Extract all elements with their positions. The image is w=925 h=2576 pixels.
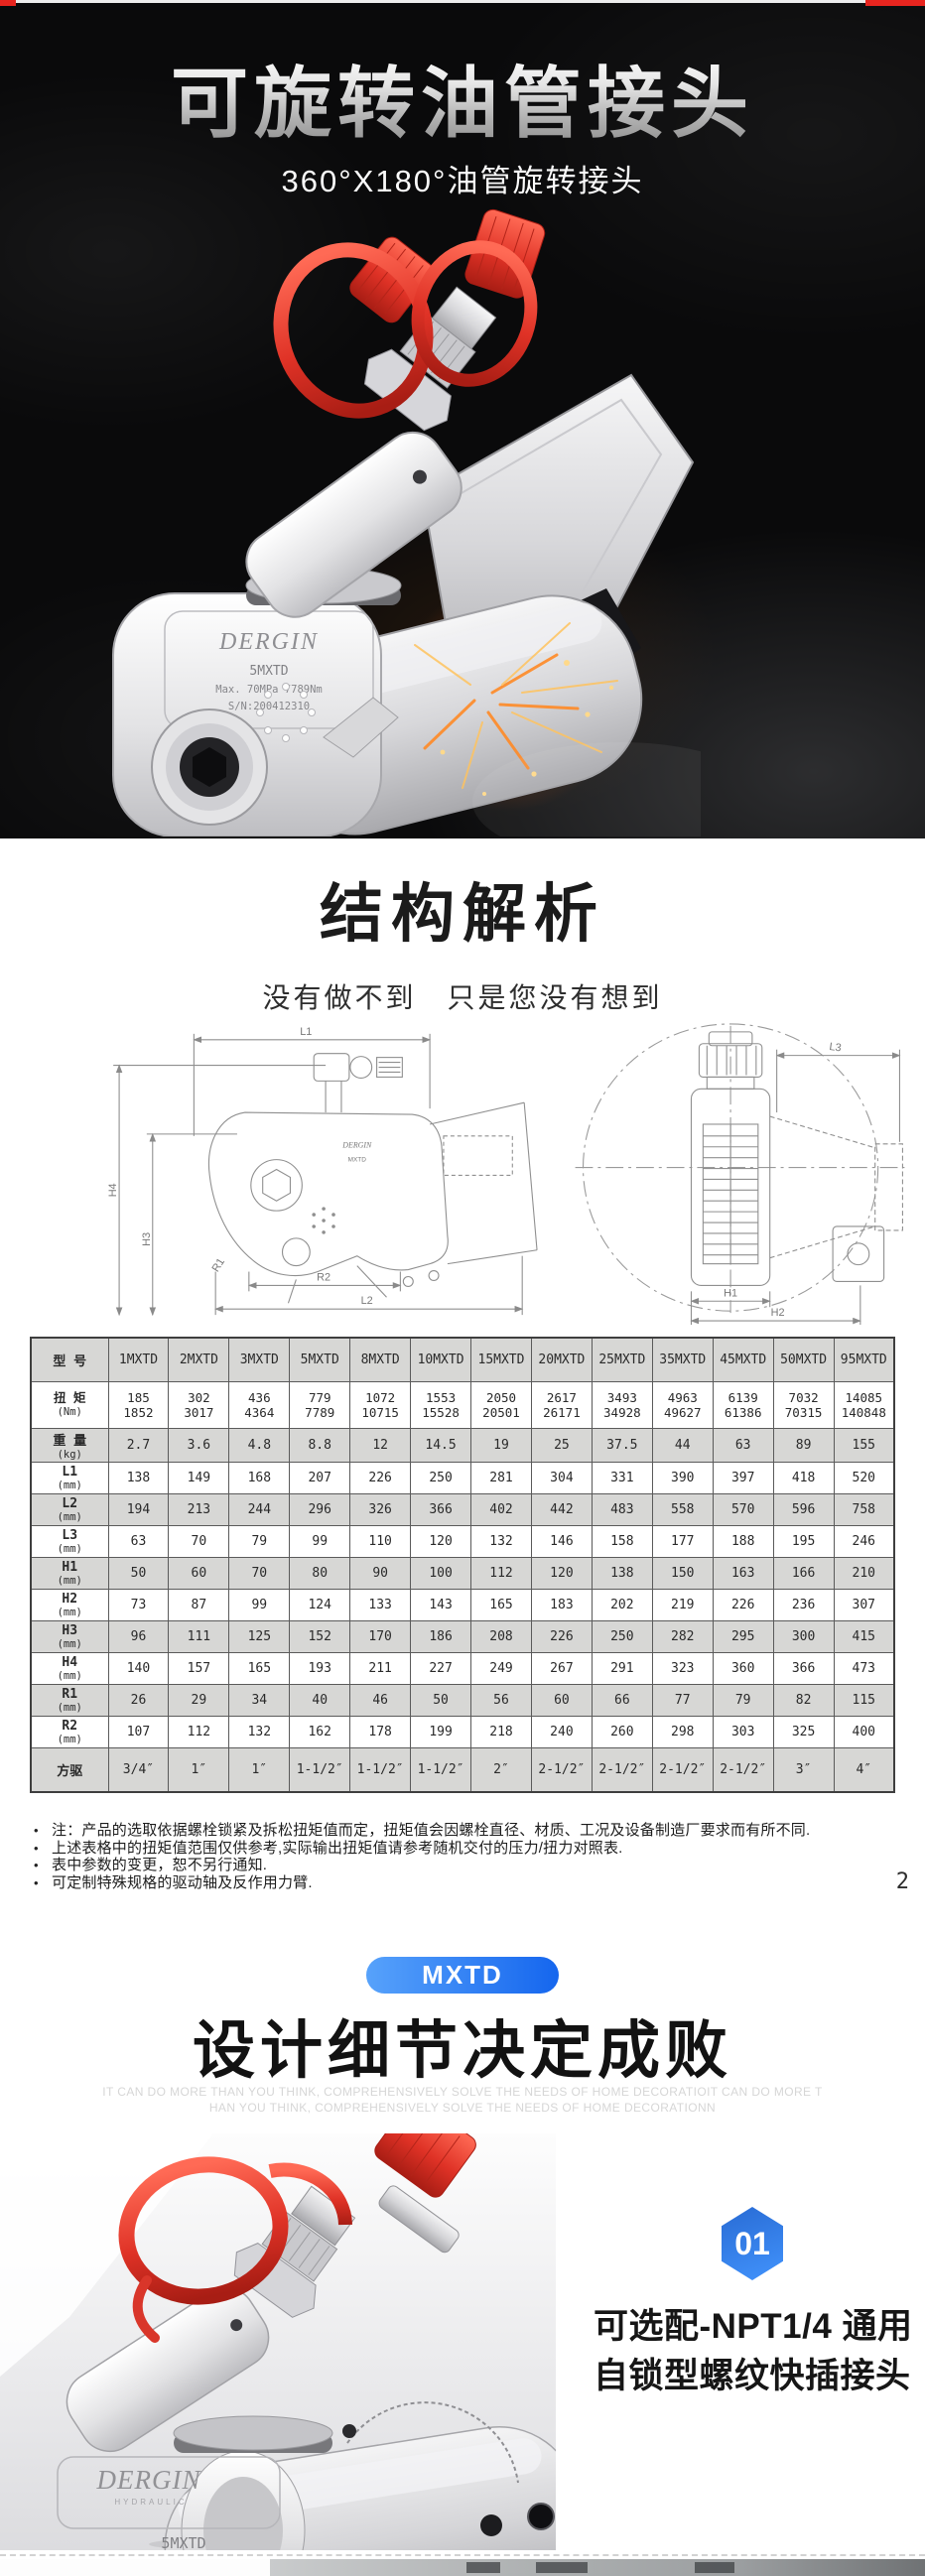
spec-value-cell: 390 xyxy=(652,1462,713,1493)
dim-label-h3: H3 xyxy=(141,1232,153,1246)
spec-value-cell: 307 xyxy=(834,1589,894,1620)
spec-value-cell: 226 xyxy=(713,1589,773,1620)
spec-value-cell: 12 xyxy=(350,1428,411,1462)
spec-value-cell: 397 xyxy=(713,1462,773,1493)
design-caption-line1: IT CAN DO MORE THAN YOU THINK, COMPREHEN… xyxy=(0,2084,925,2100)
spec-model-cell: 2MXTD xyxy=(169,1338,229,1381)
spec-value-cell: 138 xyxy=(592,1557,652,1589)
spec-value-cell: 1851852 xyxy=(108,1381,169,1428)
spec-row-label: H4(mm) xyxy=(31,1652,108,1684)
spec-value-cell: 227 xyxy=(411,1652,471,1684)
note-item: 上述表格中的扭矩值范围仅供参考,实际输出扭矩值请参考随机交付的压力/扭力对照表. xyxy=(30,1840,903,1858)
structure-subheading: 没有做不到 只是您没有想到 xyxy=(0,976,925,1016)
spec-row: 方驱3/4″1″1″1-1/2″1-1/2″1-1/2″2″2-1/2″2-1/… xyxy=(31,1747,894,1792)
spec-value-cell: 246 xyxy=(834,1525,894,1557)
dim-label-h2: H2 xyxy=(771,1307,785,1319)
spec-value-cell: 170 xyxy=(350,1620,411,1652)
structure-heading: 结构解析 xyxy=(0,863,925,955)
spec-value-cell: 303 xyxy=(713,1716,773,1747)
hero-title: 可旋转油管接头 xyxy=(0,42,925,153)
spec-value-cell: 520 xyxy=(834,1462,894,1493)
spec-value-cell: 1″ xyxy=(169,1747,229,1792)
feature-brand-mark: DERGIN xyxy=(96,2465,202,2495)
spec-value-cell: 66 xyxy=(592,1684,652,1716)
spec-value-cell: 19 xyxy=(471,1428,532,1462)
spec-value-cell: 570 xyxy=(713,1493,773,1525)
spec-value-cell: 99 xyxy=(290,1525,350,1557)
spec-value-cell: 613961386 xyxy=(713,1381,773,1428)
top-left-red-mark xyxy=(0,0,16,6)
spec-value-cell: 325 xyxy=(773,1716,834,1747)
spec-header-label: 型 号 xyxy=(31,1338,108,1381)
spec-value-cell: 4364364 xyxy=(229,1381,290,1428)
spec-value-cell: 291 xyxy=(592,1652,652,1684)
spec-value-cell: 1-1/2″ xyxy=(290,1747,350,1792)
spec-row: H2(mm)7387991241331431651832022192262363… xyxy=(31,1589,894,1620)
spec-value-cell: 25 xyxy=(531,1428,592,1462)
spec-value-cell: 115 xyxy=(834,1684,894,1716)
serial-mark: S/N:200412310 xyxy=(228,701,310,712)
spec-value-cell: 1-1/2″ xyxy=(411,1747,471,1792)
spec-value-cell: 120 xyxy=(411,1525,471,1557)
spec-value-cell: 107210715 xyxy=(350,1381,411,1428)
spec-value-cell: 166 xyxy=(773,1557,834,1589)
spec-row: L3(mm)6370799911012013214615817718819524… xyxy=(31,1525,894,1557)
spec-value-cell: 2″ xyxy=(471,1747,532,1792)
spec-row: H1(mm)5060708090100112120138150163166210 xyxy=(31,1557,894,1589)
spec-value-cell: 281 xyxy=(471,1462,532,1493)
spec-value-cell: 349334928 xyxy=(592,1381,652,1428)
spec-value-cell: 296 xyxy=(290,1493,350,1525)
spec-value-cell: 89 xyxy=(773,1428,834,1462)
feature-product-photo: DERGIN HYDRAULIC 5MXTD xyxy=(0,2133,556,2550)
spec-value-cell: 14.5 xyxy=(411,1428,471,1462)
spec-value-cell: 331 xyxy=(592,1462,652,1493)
spec-value-cell: 195 xyxy=(773,1525,834,1557)
spec-value-cell: 110 xyxy=(350,1525,411,1557)
hero-subtitle: 360°X180°油管旋转接头 xyxy=(0,156,925,200)
next-section-preview xyxy=(0,2559,925,2576)
spec-value-cell: 40 xyxy=(290,1684,350,1716)
spec-value-cell: 63 xyxy=(108,1525,169,1557)
spec-value-cell: 70 xyxy=(229,1557,290,1589)
spec-value-cell: 323 xyxy=(652,1652,713,1684)
spec-value-cell: 87 xyxy=(169,1589,229,1620)
design-caption-line2: HAN YOU THINK, COMPREHENSIVELY SOLVE THE… xyxy=(0,2100,925,2116)
spec-value-cell: 2-1/2″ xyxy=(713,1747,773,1792)
spec-value-cell: 90 xyxy=(350,1557,411,1589)
spec-value-cell: 177 xyxy=(652,1525,713,1557)
spec-value-cell: 138 xyxy=(108,1462,169,1493)
spec-row-label: L2(mm) xyxy=(31,1493,108,1525)
spec-value-cell: 152 xyxy=(290,1620,350,1652)
spec-value-cell: 213 xyxy=(169,1493,229,1525)
dim-label-h1: H1 xyxy=(724,1287,737,1299)
spec-value-cell: 260 xyxy=(592,1716,652,1747)
spec-row-label: L3(mm) xyxy=(31,1525,108,1557)
spec-value-cell: 4″ xyxy=(834,1747,894,1792)
spec-value-cell: 37.5 xyxy=(592,1428,652,1462)
feature-model-mark: 5MXTD xyxy=(161,2534,205,2550)
top-right-red-mark xyxy=(865,0,925,6)
product-detail-page: 可旋转油管接头 360°X180°油管旋转接头 xyxy=(0,0,925,2576)
spec-model-cell: 15MXTD xyxy=(471,1338,532,1381)
mxtd-badge: MXTD xyxy=(366,1957,559,1994)
spec-value-cell: 79 xyxy=(713,1684,773,1716)
spec-value-cell: 400 xyxy=(834,1716,894,1747)
spec-value-cell: 366 xyxy=(773,1652,834,1684)
svg-text:DERGIN: DERGIN xyxy=(341,1141,372,1150)
spec-model-cell: 1MXTD xyxy=(108,1338,169,1381)
spec-value-cell: 157 xyxy=(169,1652,229,1684)
spec-value-cell: 44 xyxy=(652,1428,713,1462)
spec-value-cell: 3023017 xyxy=(169,1381,229,1428)
spec-value-cell: 304 xyxy=(531,1462,592,1493)
spec-value-cell: 178 xyxy=(350,1716,411,1747)
spec-value-cell: 8.8 xyxy=(290,1428,350,1462)
spec-value-cell: 100 xyxy=(411,1557,471,1589)
feature-brand-tagline: HYDRAULIC xyxy=(114,2498,187,2507)
spec-model-cell: 95MXTD xyxy=(834,1338,894,1381)
spec-row: R2(mm)1071121321621781992182402602983033… xyxy=(31,1716,894,1747)
feature-description: 可选配-NPT1/4 通用自锁型螺纹快插接头 xyxy=(594,2302,925,2401)
spec-value-cell: 188 xyxy=(713,1525,773,1557)
spec-value-cell: 111 xyxy=(169,1620,229,1652)
dim-label-r2: R2 xyxy=(317,1271,330,1283)
next-image-fragment xyxy=(270,2559,925,2576)
spec-value-cell: 218 xyxy=(471,1716,532,1747)
spec-value-cell: 63 xyxy=(713,1428,773,1462)
spec-value-cell: 558 xyxy=(652,1493,713,1525)
spec-value-cell: 132 xyxy=(471,1525,532,1557)
spec-value-cell: 163 xyxy=(713,1557,773,1589)
spec-value-cell: 758 xyxy=(834,1493,894,1525)
spec-value-cell: 298 xyxy=(652,1716,713,1747)
spec-value-cell: 240 xyxy=(531,1716,592,1747)
spec-value-cell: 146 xyxy=(531,1525,592,1557)
spec-row: R1(mm)262934404650566066777982115 xyxy=(31,1684,894,1716)
spec-value-cell: 155315528 xyxy=(411,1381,471,1428)
dashed-divider xyxy=(0,2554,925,2556)
spec-value-cell: 60 xyxy=(531,1684,592,1716)
feature-number: 01 xyxy=(734,2226,770,2262)
spec-value-cell: 140 xyxy=(108,1652,169,1684)
spec-value-cell: 402 xyxy=(471,1493,532,1525)
spec-value-cell: 205020501 xyxy=(471,1381,532,1428)
spec-model-cell: 8MXTD xyxy=(350,1338,411,1381)
spec-value-cell: 250 xyxy=(592,1620,652,1652)
spec-row-label: H1(mm) xyxy=(31,1557,108,1589)
brand-mark: DERGIN xyxy=(218,629,319,655)
spec-value-cell: 112 xyxy=(471,1557,532,1589)
spec-value-cell: 50 xyxy=(108,1557,169,1589)
spec-value-cell: 282 xyxy=(652,1620,713,1652)
spec-row: 扭 矩(Nm)185185230230174364364779778910721… xyxy=(31,1381,894,1428)
spec-value-cell: 208 xyxy=(471,1620,532,1652)
spec-table: 型 号1MXTD2MXTD3MXTD5MXTD8MXTD10MXTD15MXTD… xyxy=(30,1337,895,1793)
spec-value-cell: 79 xyxy=(229,1525,290,1557)
spec-value-cell: 596 xyxy=(773,1493,834,1525)
dim-label-r1: R1 xyxy=(209,1256,227,1274)
notes-list: 注：产品的选取依据螺栓锁紧及拆松扭矩值而定，扭矩值会因螺栓直径、材质、工况及设备… xyxy=(30,1822,903,1891)
spec-row-label: 扭 矩(Nm) xyxy=(31,1381,108,1428)
spec-value-cell: 250 xyxy=(411,1462,471,1493)
spec-value-cell: 34 xyxy=(229,1684,290,1716)
spec-model-cell: 35MXTD xyxy=(652,1338,713,1381)
dim-label-l2: L2 xyxy=(361,1295,373,1307)
spec-value-cell: 107 xyxy=(108,1716,169,1747)
spec-value-cell: 186 xyxy=(411,1620,471,1652)
spec-row-label: 重 量(kg) xyxy=(31,1428,108,1462)
spec-row-label: L1(mm) xyxy=(31,1462,108,1493)
spec-row-label: H3(mm) xyxy=(31,1620,108,1652)
spec-value-cell: 99 xyxy=(229,1589,290,1620)
note-item: 表中参数的变更，恕不另行通知. xyxy=(30,1857,903,1874)
spec-value-cell: 82 xyxy=(773,1684,834,1716)
spec-value-cell: 211 xyxy=(350,1652,411,1684)
design-heading: 设计细节决定成败 xyxy=(0,2000,925,2091)
spec-model-cell: 25MXTD xyxy=(592,1338,652,1381)
spec-value-cell: 26 xyxy=(108,1684,169,1716)
spec-value-cell: 7797789 xyxy=(290,1381,350,1428)
spec-model-cell: 5MXTD xyxy=(290,1338,350,1381)
spec-value-cell: 183 xyxy=(531,1589,592,1620)
hero-product-photo: DERGIN 5MXTD Max. 70MPa 7789Nm S/N:20041… xyxy=(26,196,701,837)
model-mark: 5MXTD xyxy=(249,664,288,679)
dim-label-l3: L3 xyxy=(829,1041,843,1055)
design-caption-en: IT CAN DO MORE THAN YOU THINK, COMPREHEN… xyxy=(0,2084,925,2116)
spec-value-cell: 132 xyxy=(229,1716,290,1747)
note-item: 注：产品的选取依据螺栓锁紧及拆松扭矩值而定，扭矩值会因螺栓直径、材质、工况及设备… xyxy=(30,1822,903,1840)
spec-value-cell: 1″ xyxy=(229,1747,290,1792)
svg-text:MXTD: MXTD xyxy=(348,1157,367,1164)
spec-value-cell: 120 xyxy=(531,1557,592,1589)
hero-section: 可旋转油管接头 360°X180°油管旋转接头 xyxy=(0,0,925,838)
spec-table-body: 型 号1MXTD2MXTD3MXTD5MXTD8MXTD10MXTD15MXTD… xyxy=(31,1338,894,1792)
spec-value-cell: 2.7 xyxy=(108,1428,169,1462)
spec-value-cell: 226 xyxy=(531,1620,592,1652)
spec-value-cell: 703270315 xyxy=(773,1381,834,1428)
spec-model-cell: 10MXTD xyxy=(411,1338,471,1381)
spec-row: L2(mm)1942132442963263664024424835585705… xyxy=(31,1493,894,1525)
spec-value-cell: 77 xyxy=(652,1684,713,1716)
spec-value-cell: 326 xyxy=(350,1493,411,1525)
spec-value-cell: 125 xyxy=(229,1620,290,1652)
spec-value-cell: 73 xyxy=(108,1589,169,1620)
spec-value-cell: 165 xyxy=(471,1589,532,1620)
spec-model-cell: 3MXTD xyxy=(229,1338,290,1381)
side-view-drawing: L1 H4 H3 R1 R2 L2 DERGIN MXTD xyxy=(97,1018,574,1328)
spec-value-cell: 295 xyxy=(713,1620,773,1652)
spec-value-cell: 496349627 xyxy=(652,1381,713,1428)
spec-value-cell: 199 xyxy=(411,1716,471,1747)
spec-value-cell: 2-1/2″ xyxy=(531,1747,592,1792)
spec-value-cell: 236 xyxy=(773,1589,834,1620)
spec-row-label: R2(mm) xyxy=(31,1716,108,1747)
spec-value-cell: 219 xyxy=(652,1589,713,1620)
spec-value-cell: 366 xyxy=(411,1493,471,1525)
spec-value-cell: 483 xyxy=(592,1493,652,1525)
spec-value-cell: 168 xyxy=(229,1462,290,1493)
spec-value-cell: 207 xyxy=(290,1462,350,1493)
spec-value-cell: 360 xyxy=(713,1652,773,1684)
front-view-drawing: L3 H1 H2 xyxy=(574,1018,906,1328)
feature-number-badge: 01 xyxy=(722,2207,783,2280)
spec-value-cell: 80 xyxy=(290,1557,350,1589)
spec-value-cell: 3/4″ xyxy=(108,1747,169,1792)
dim-label-h4: H4 xyxy=(107,1183,119,1197)
spec-value-cell: 165 xyxy=(229,1652,290,1684)
spec-value-cell: 226 xyxy=(350,1462,411,1493)
spec-value-cell: 56 xyxy=(471,1684,532,1716)
spec-row-label: 方驱 xyxy=(31,1747,108,1792)
dim-label-l1: L1 xyxy=(300,1026,312,1038)
top-divider xyxy=(0,0,925,3)
spec-value-cell: 300 xyxy=(773,1620,834,1652)
spec-row: H3(mm)9611112515217018620822625028229530… xyxy=(31,1620,894,1652)
spec-model-cell: 20MXTD xyxy=(531,1338,592,1381)
spec-value-cell: 194 xyxy=(108,1493,169,1525)
spec-value-cell: 2-1/2″ xyxy=(592,1747,652,1792)
spec-value-cell: 267 xyxy=(531,1652,592,1684)
spec-value-cell: 150 xyxy=(652,1557,713,1589)
spec-value-cell: 14085140848 xyxy=(834,1381,894,1428)
spec-header-row: 型 号1MXTD2MXTD3MXTD5MXTD8MXTD10MXTD15MXTD… xyxy=(31,1338,894,1381)
page-number: 2 xyxy=(896,1869,909,1894)
spec-value-cell: 2-1/2″ xyxy=(652,1747,713,1792)
spec-value-cell: 193 xyxy=(290,1652,350,1684)
spec-value-cell: 249 xyxy=(471,1652,532,1684)
spec-value-cell: 261726171 xyxy=(531,1381,592,1428)
spec-row-label: H2(mm) xyxy=(31,1589,108,1620)
spec-value-cell: 50 xyxy=(411,1684,471,1716)
spec-value-cell: 158 xyxy=(592,1525,652,1557)
spec-value-cell: 143 xyxy=(411,1589,471,1620)
spec-value-cell: 473 xyxy=(834,1652,894,1684)
spec-value-cell: 1-1/2″ xyxy=(350,1747,411,1792)
spec-model-cell: 50MXTD xyxy=(773,1338,834,1381)
spec-value-cell: 149 xyxy=(169,1462,229,1493)
spec-value-cell: 3″ xyxy=(773,1747,834,1792)
spec-value-cell: 70 xyxy=(169,1525,229,1557)
spec-value-cell: 124 xyxy=(290,1589,350,1620)
spec-value-cell: 210 xyxy=(834,1557,894,1589)
spec-value-cell: 4.8 xyxy=(229,1428,290,1462)
spec-value-cell: 162 xyxy=(290,1716,350,1747)
spec-value-cell: 418 xyxy=(773,1462,834,1493)
spec-row: 重 量(kg)2.73.64.88.81214.5192537.54463891… xyxy=(31,1428,894,1462)
spec-row: H4(mm)1401571651932112272492672913233603… xyxy=(31,1652,894,1684)
spec-value-cell: 415 xyxy=(834,1620,894,1652)
spec-row: L1(mm)1381491682072262502813043313903974… xyxy=(31,1462,894,1493)
spec-value-cell: 133 xyxy=(350,1589,411,1620)
spec-value-cell: 244 xyxy=(229,1493,290,1525)
note-item: 可定制特殊规格的驱动轴及反作用力臂. xyxy=(30,1874,903,1892)
spec-value-cell: 46 xyxy=(350,1684,411,1716)
spec-value-cell: 96 xyxy=(108,1620,169,1652)
spec-model-cell: 45MXTD xyxy=(713,1338,773,1381)
spec-value-cell: 202 xyxy=(592,1589,652,1620)
spec-value-cell: 155 xyxy=(834,1428,894,1462)
spec-value-cell: 3.6 xyxy=(169,1428,229,1462)
spec-row-label: R1(mm) xyxy=(31,1684,108,1716)
spec-value-cell: 29 xyxy=(169,1684,229,1716)
spec-value-cell: 112 xyxy=(169,1716,229,1747)
spec-value-cell: 442 xyxy=(531,1493,592,1525)
spec-value-cell: 60 xyxy=(169,1557,229,1589)
